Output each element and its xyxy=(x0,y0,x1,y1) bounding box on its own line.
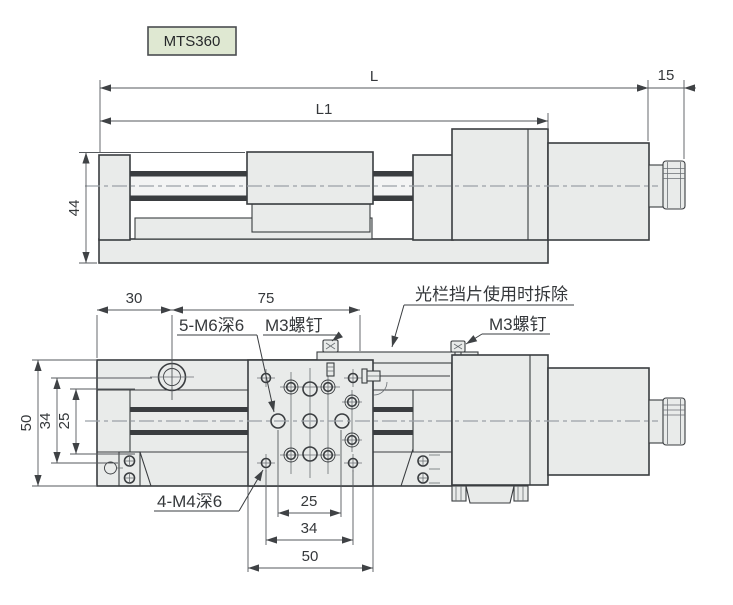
plan-view: 30 75 50 34 25 25 34 xyxy=(18,284,685,572)
dim-44: 44 xyxy=(66,200,83,217)
dim-L1: L1 xyxy=(316,101,333,118)
side-view: L 15 L1 44 xyxy=(66,67,696,263)
side-bearing-block xyxy=(413,155,453,240)
annotation-m4-holes: 4-M4深6 xyxy=(157,492,222,511)
dim-50-bottom: 50 xyxy=(302,548,319,565)
annotation-m3-screw-left: M3螺钉 xyxy=(265,316,323,335)
side-motor-mount-block xyxy=(452,129,548,240)
dim-15: 15 xyxy=(658,67,675,84)
side-carriage-lower xyxy=(252,204,370,232)
side-base-plate xyxy=(99,239,548,263)
dim-75: 75 xyxy=(258,290,275,307)
dim-L: L xyxy=(370,68,378,85)
model-label-text: MTS360 xyxy=(164,33,221,50)
plan-motor-mount-block xyxy=(452,355,548,485)
annotation-flag-removal-note: 光栏挡片使用时拆除 xyxy=(415,284,568,304)
dim-34-left: 34 xyxy=(37,413,54,430)
plan-knob xyxy=(663,398,685,445)
annotation-m6-holes: 5-M6深6 xyxy=(179,316,244,335)
side-motor-body xyxy=(548,143,649,240)
dim-25-left: 25 xyxy=(56,413,73,430)
technical-drawing: MTS360 xyxy=(0,0,733,605)
side-carriage xyxy=(247,152,373,204)
annotation-m3-screw-right: M3螺钉 xyxy=(489,315,547,334)
dim-50-left: 50 xyxy=(18,415,35,432)
model-label: MTS360 xyxy=(148,27,236,55)
dim-34-bottom: 34 xyxy=(301,520,318,537)
dim-25-bottom: 25 xyxy=(301,493,318,510)
side-left-end-block xyxy=(99,155,130,240)
plan-dsub-connector xyxy=(452,486,528,503)
side-knob xyxy=(663,161,685,209)
dim-30: 30 xyxy=(126,290,143,307)
